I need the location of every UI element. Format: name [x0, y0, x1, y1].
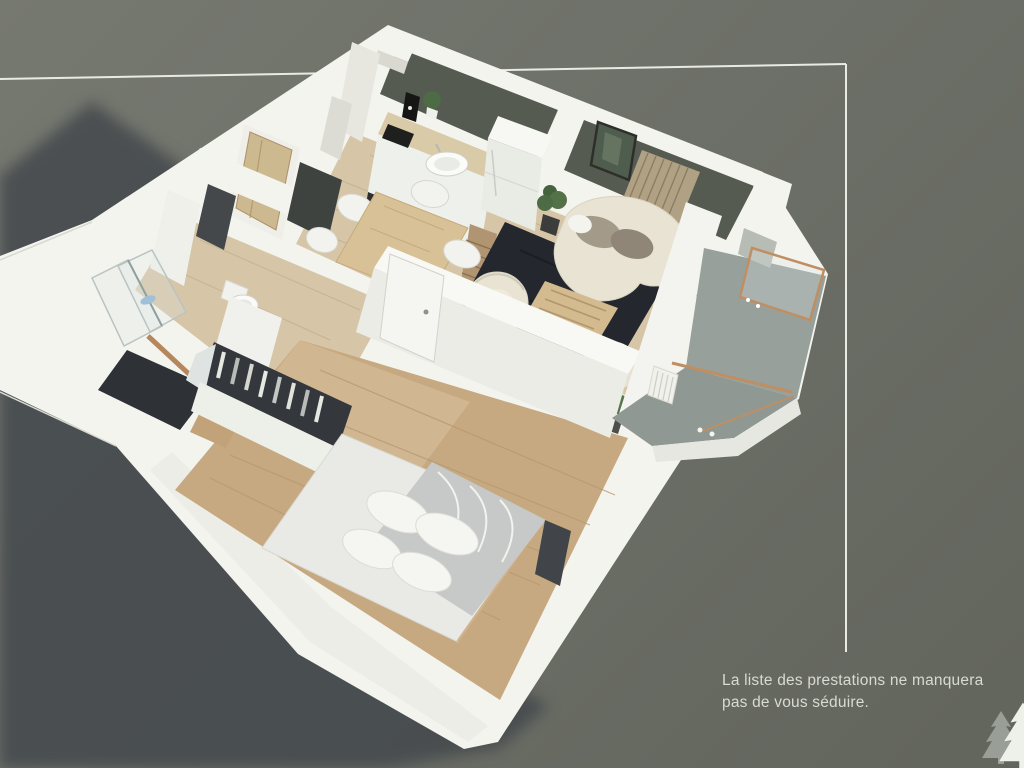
caption-line-1: La liste des prestations ne manquera [722, 670, 983, 692]
caption-line-2: pas de vous séduire. [722, 692, 983, 714]
marketing-caption: La liste des prestations ne manquera pas… [722, 670, 983, 714]
fir-trees-icon [982, 703, 1024, 768]
floorplan-render-page: La liste des prestations ne manquera pas… [0, 0, 1024, 768]
floorplan-3d-render [0, 0, 1024, 768]
